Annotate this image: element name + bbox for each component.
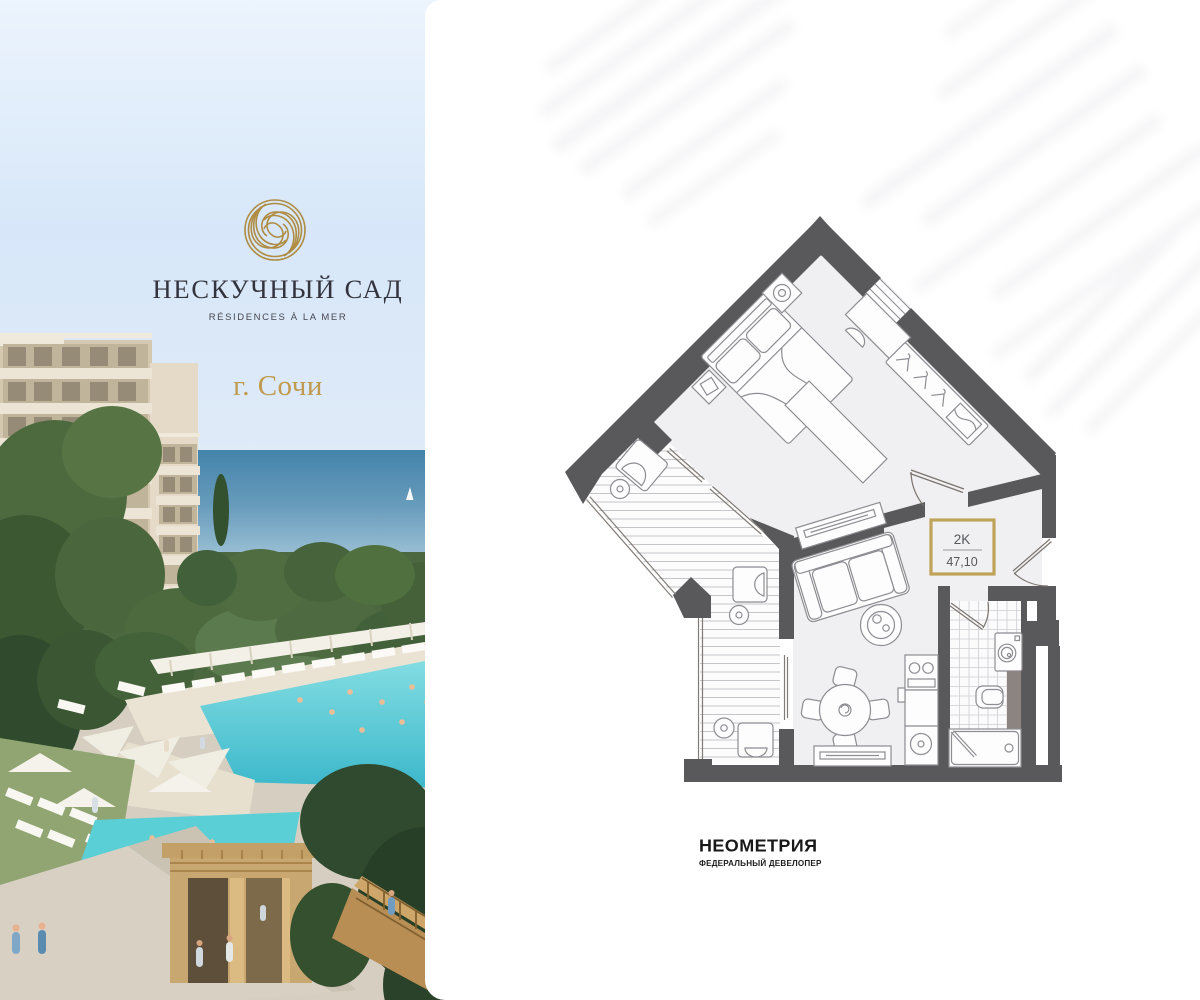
- svg-text:2K: 2K: [954, 532, 971, 547]
- svg-text:47,10: 47,10: [946, 555, 977, 569]
